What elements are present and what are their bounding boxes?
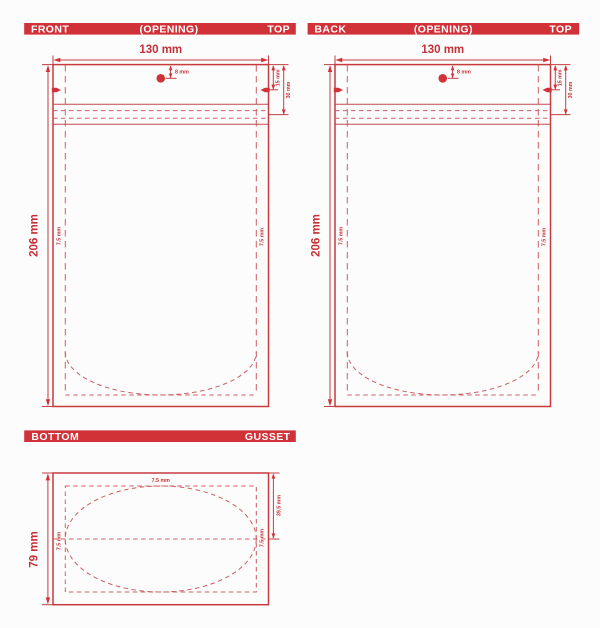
svg-text:206 mm: 206 mm <box>29 214 41 257</box>
svg-text:BOTTOM: BOTTOM <box>31 431 79 443</box>
svg-text:8 mm: 8 mm <box>175 69 189 75</box>
svg-text:TOP: TOP <box>549 23 572 35</box>
svg-text:79 mm: 79 mm <box>29 531 41 567</box>
svg-text:FRONT: FRONT <box>31 23 69 35</box>
svg-text:(OPENING): (OPENING) <box>414 23 473 35</box>
svg-text:130 mm: 130 mm <box>139 44 182 56</box>
svg-text:BACK: BACK <box>314 23 346 35</box>
svg-text:15 mm: 15 mm <box>275 69 281 86</box>
svg-text:GUSSET: GUSSET <box>245 431 291 443</box>
svg-text:7.5 mm: 7.5 mm <box>259 228 265 247</box>
svg-text:7.5 mm: 7.5 mm <box>56 532 62 551</box>
svg-text:(OPENING): (OPENING) <box>139 23 198 35</box>
svg-text:TOP: TOP <box>267 23 290 35</box>
svg-text:7.5 mm: 7.5 mm <box>56 227 62 246</box>
svg-text:7.5 mm: 7.5 mm <box>152 478 171 484</box>
svg-text:30 mm: 30 mm <box>286 81 292 98</box>
svg-text:7.5 mm: 7.5 mm <box>259 529 265 548</box>
svg-text:39.5 mm: 39.5 mm <box>277 495 283 516</box>
